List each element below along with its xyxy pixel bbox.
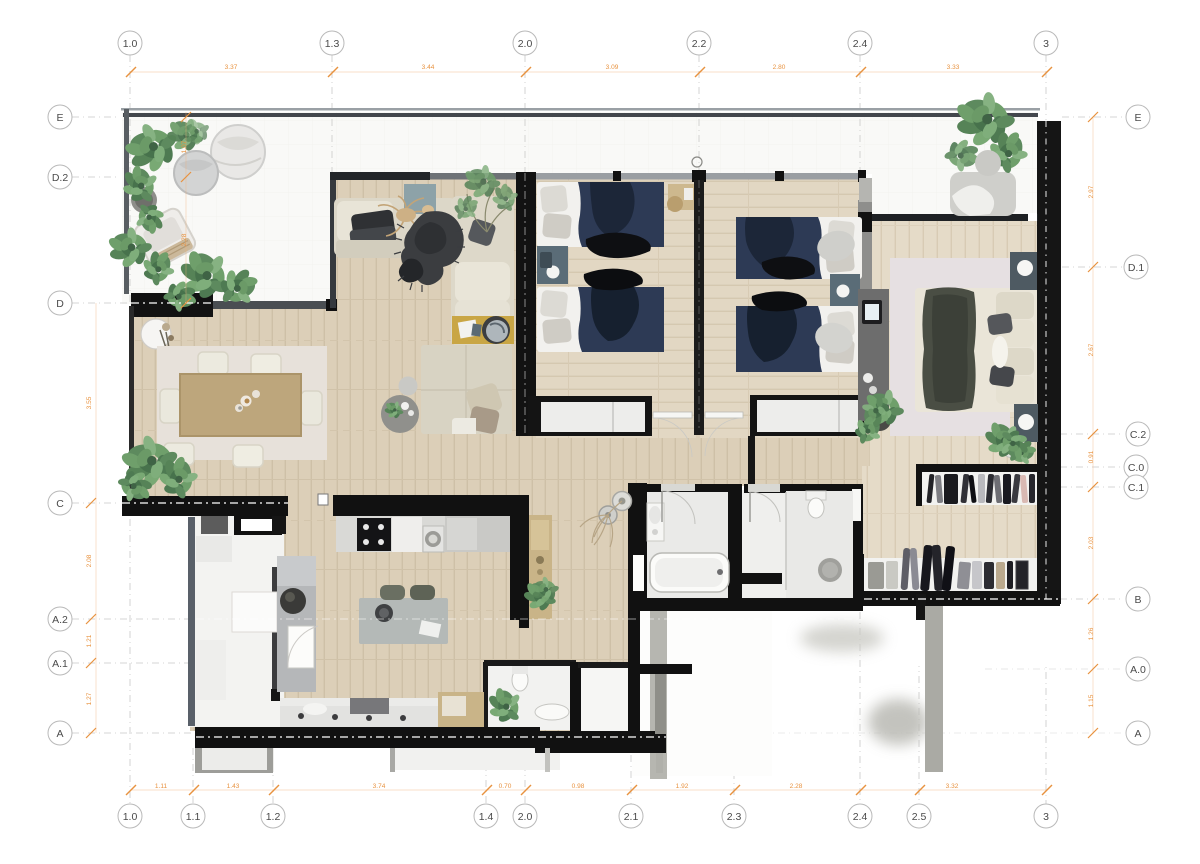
svg-text:1.07: 1.07 — [181, 140, 188, 153]
svg-text:C.1: C.1 — [1128, 482, 1145, 494]
svg-text:2.28: 2.28 — [790, 783, 803, 790]
svg-text:1.3: 1.3 — [325, 38, 340, 50]
svg-text:C.2: C.2 — [1130, 429, 1147, 441]
svg-text:A.1: A.1 — [52, 658, 68, 670]
svg-text:1.43: 1.43 — [227, 783, 240, 790]
svg-text:1.2: 1.2 — [266, 811, 281, 823]
svg-text:A.2: A.2 — [52, 614, 68, 626]
svg-text:1.26: 1.26 — [1088, 627, 1095, 640]
svg-text:1.15: 1.15 — [1088, 694, 1095, 707]
svg-text:2.03: 2.03 — [1088, 536, 1095, 549]
svg-text:2.2: 2.2 — [692, 38, 707, 50]
svg-text:2.4: 2.4 — [853, 811, 868, 823]
svg-text:2.5: 2.5 — [912, 811, 927, 823]
svg-text:D: D — [56, 298, 64, 310]
svg-text:A: A — [1134, 728, 1141, 740]
svg-text:A.0: A.0 — [1130, 664, 1146, 676]
svg-text:C: C — [56, 498, 64, 510]
svg-text:1.21: 1.21 — [86, 634, 93, 647]
svg-text:D.2: D.2 — [52, 172, 69, 184]
svg-text:1.11: 1.11 — [155, 783, 168, 790]
svg-text:3.32: 3.32 — [946, 783, 959, 790]
svg-text:1.0: 1.0 — [123, 811, 138, 823]
svg-text:0.70: 0.70 — [499, 783, 512, 790]
svg-text:2.67: 2.67 — [1088, 343, 1095, 356]
svg-text:E: E — [1134, 112, 1141, 124]
svg-text:B: B — [1134, 594, 1141, 606]
svg-text:0.98: 0.98 — [572, 783, 585, 790]
svg-text:0.91: 0.91 — [1088, 450, 1095, 463]
svg-text:1.92: 1.92 — [676, 783, 689, 790]
svg-text:2.4: 2.4 — [853, 38, 868, 50]
svg-text:3: 3 — [1043, 811, 1049, 823]
svg-text:3.37: 3.37 — [225, 64, 238, 71]
svg-text:2.08: 2.08 — [86, 554, 93, 567]
svg-text:1.1: 1.1 — [186, 811, 201, 823]
svg-text:D.1: D.1 — [1128, 262, 1145, 274]
svg-text:1.27: 1.27 — [86, 692, 93, 705]
svg-text:3.55: 3.55 — [86, 396, 93, 409]
svg-text:2.3: 2.3 — [727, 811, 742, 823]
svg-text:2.0: 2.0 — [518, 38, 533, 50]
svg-text:2.28: 2.28 — [181, 233, 188, 246]
svg-text:3: 3 — [1043, 38, 1049, 50]
svg-text:1.4: 1.4 — [479, 811, 494, 823]
svg-text:2.1: 2.1 — [624, 811, 639, 823]
svg-text:E: E — [56, 112, 63, 124]
svg-text:3.33: 3.33 — [947, 64, 960, 71]
svg-text:3.09: 3.09 — [606, 64, 619, 71]
svg-text:2.0: 2.0 — [518, 811, 533, 823]
svg-text:3.74: 3.74 — [373, 783, 386, 790]
svg-text:1.0: 1.0 — [123, 38, 138, 50]
svg-text:2.80: 2.80 — [773, 64, 786, 71]
svg-text:C.0: C.0 — [1128, 462, 1145, 474]
svg-text:A: A — [56, 728, 63, 740]
svg-text:2.97: 2.97 — [1088, 185, 1095, 198]
svg-text:3.44: 3.44 — [422, 64, 435, 71]
